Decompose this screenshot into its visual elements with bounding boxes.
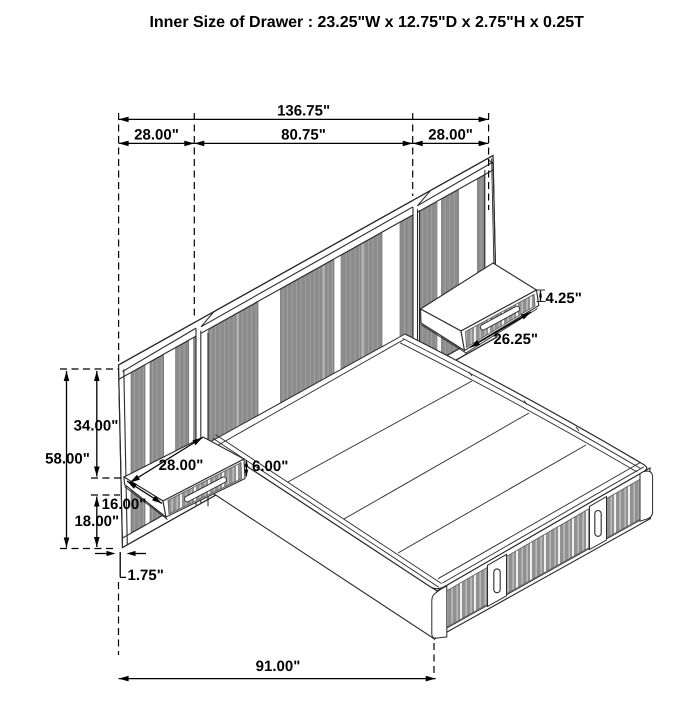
svg-text:28.00": 28.00"	[159, 457, 204, 474]
svg-text:28.00": 28.00"	[134, 127, 179, 144]
svg-text:80.75": 80.75"	[281, 127, 326, 144]
svg-text:26.25": 26.25"	[493, 331, 538, 348]
svg-text:6.00": 6.00"	[252, 458, 288, 475]
svg-text:Inner Size of Drawer : 23.25"W: Inner Size of Drawer : 23.25"W x 12.75"D…	[149, 14, 584, 31]
svg-text:18.00": 18.00"	[74, 513, 119, 530]
svg-text:34.00": 34.00"	[74, 418, 119, 435]
svg-text:136.75": 136.75"	[277, 103, 330, 120]
svg-text:4.25": 4.25"	[546, 290, 582, 307]
svg-text:58.00": 58.00"	[45, 451, 90, 468]
svg-text:28.00": 28.00"	[428, 127, 473, 144]
svg-text:1.75": 1.75"	[128, 567, 164, 584]
svg-text:91.00": 91.00"	[256, 658, 301, 675]
svg-text:16.00": 16.00"	[102, 496, 147, 513]
